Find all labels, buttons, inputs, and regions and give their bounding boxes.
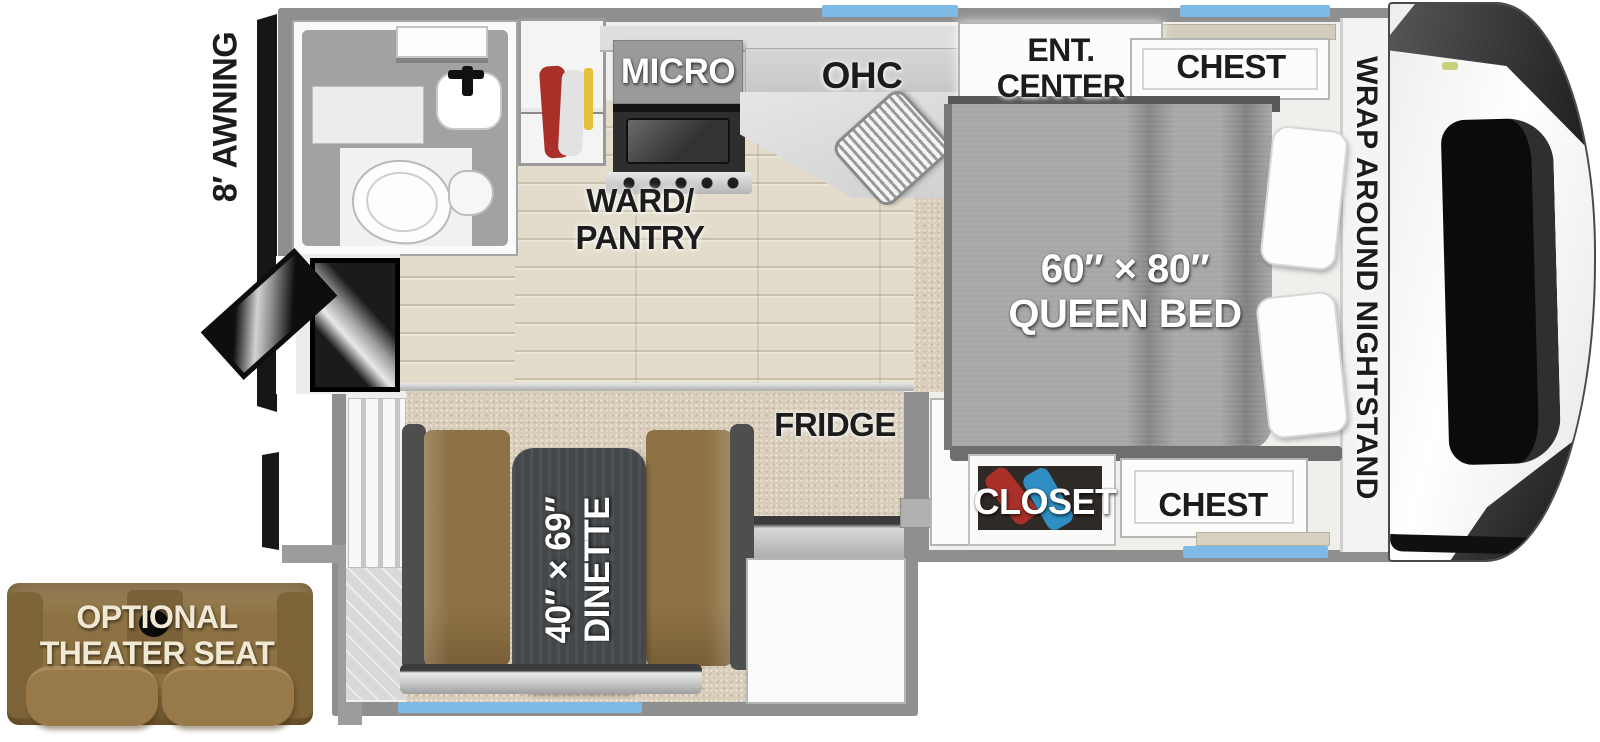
door-threshold <box>900 498 932 528</box>
wardrobe-hanger-yellow <box>584 68 593 130</box>
below-steps-panel <box>346 568 406 700</box>
wrap-around-nightstand-label: WRAP AROUND NIGHTSTAND <box>1344 48 1388 508</box>
sink-faucet-handle-icon <box>448 70 484 79</box>
dinette-label: 40″ × 69″ DINETTE <box>530 445 626 695</box>
awning-label: 8′ AWNING <box>203 30 249 205</box>
ward-pantry-label: WARD/ PANTRY <box>556 182 724 258</box>
chest-bottom-trim <box>1196 532 1330 546</box>
entry-door-open <box>310 258 400 392</box>
range-glass <box>626 118 730 164</box>
cap-base-trim <box>1390 534 1542 555</box>
dinette-bench-left-back <box>402 424 426 670</box>
window-bottom-bedroom <box>1183 546 1328 558</box>
window-bottom-dinette <box>398 702 642 713</box>
bed-left-shadow <box>944 104 952 450</box>
roof-vent <box>396 26 488 58</box>
bathroom-counter <box>312 86 424 144</box>
grab-bar <box>262 452 279 550</box>
floorplan-canvas: 8′ AWNING MICRO OHC WARD/ PANTRY ENT. CE… <box>0 0 1600 742</box>
window-top-kitchen <box>822 5 958 17</box>
toilet-tank <box>448 170 494 216</box>
floor-transition-strip <box>398 383 914 391</box>
window-top-bedroom <box>1180 5 1330 17</box>
ent-center-label: ENT. CENTER <box>966 28 1156 110</box>
entry-steps <box>348 398 406 568</box>
micro-label: MICRO <box>613 48 743 96</box>
front-cap-window <box>1441 118 1562 466</box>
chest-top-label: CHEST <box>1156 44 1306 90</box>
entry-step-well <box>746 558 906 704</box>
wood-floor-hall <box>398 250 515 386</box>
ohc-label: OHC <box>810 54 914 98</box>
theater-seat-label: OPTIONAL THEATER SEAT <box>28 596 286 676</box>
entry-step-platform <box>754 516 904 560</box>
front-cap <box>1388 2 1596 562</box>
corner-trim-h <box>282 545 346 563</box>
queen-bed-label: 60″ × 80″ QUEEN BED <box>965 242 1285 342</box>
closet-label: CLOSET <box>956 480 1134 524</box>
wardrobe-clothes-white <box>558 69 586 156</box>
dinette-bench-left <box>424 430 510 666</box>
chest-bottom-label: CHEST <box>1138 482 1288 528</box>
cap-marker-light-icon <box>1442 62 1458 70</box>
fridge-label: FRIDGE <box>756 404 914 446</box>
dinette-bench-right <box>646 430 732 666</box>
